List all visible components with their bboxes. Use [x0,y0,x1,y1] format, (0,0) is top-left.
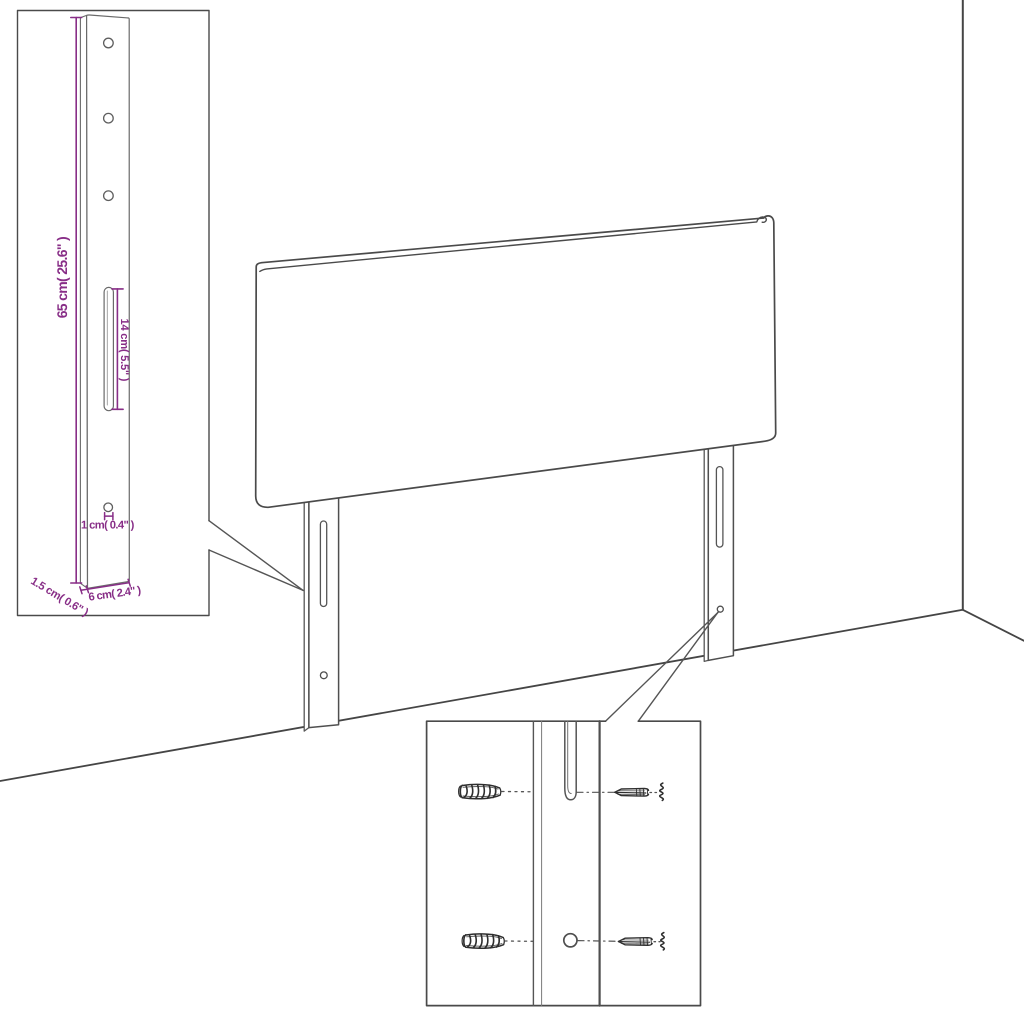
svg-text:65 cm( 25.6" ): 65 cm( 25.6" ) [54,236,70,318]
svg-text:1 cm( 0.4" ): 1 cm( 0.4" ) [81,520,135,532]
svg-text:14 cm( 5.5" ): 14 cm( 5.5" ) [118,319,130,382]
